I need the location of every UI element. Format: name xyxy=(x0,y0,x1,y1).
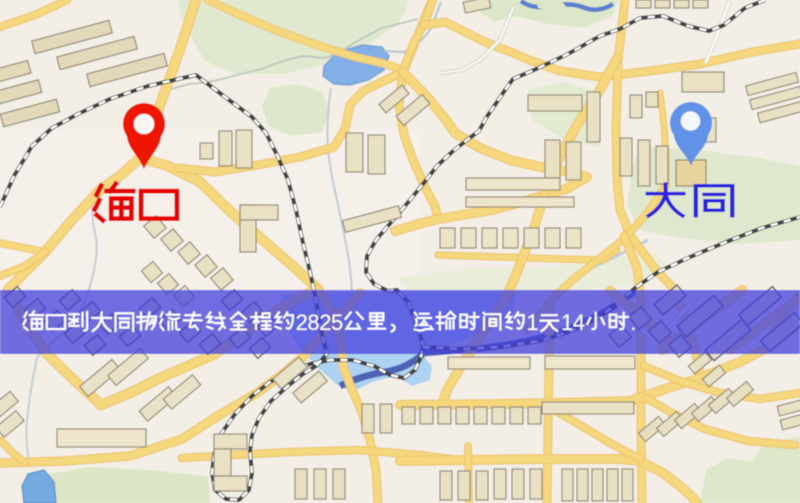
svg-text:1: 1 xyxy=(526,310,538,335)
svg-text:2: 2 xyxy=(319,310,331,335)
svg-text:5: 5 xyxy=(331,310,343,335)
svg-text:1: 1 xyxy=(561,310,573,335)
svg-text:8: 8 xyxy=(307,310,319,335)
svg-text:2: 2 xyxy=(296,310,308,335)
svg-text:4: 4 xyxy=(573,310,585,335)
svg-text:.: . xyxy=(630,310,636,335)
